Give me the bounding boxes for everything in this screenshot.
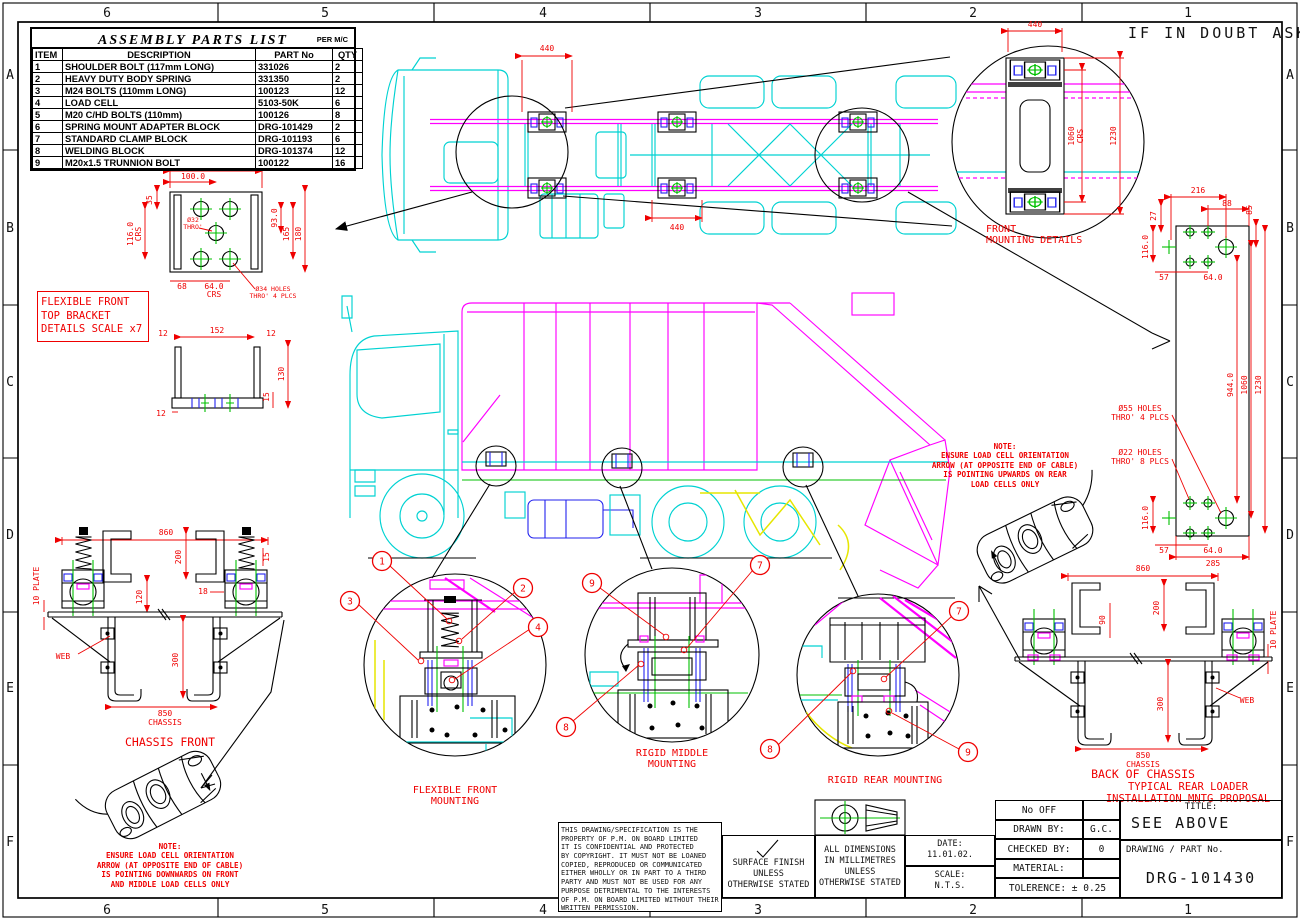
- callout-55-holes: THRO' 4 PLCS: [1111, 413, 1169, 422]
- no-off-value: [1083, 800, 1120, 820]
- assembly-parts-list: ASSEMBLY PARTS LIST PER M/C ITEM DESCRIP…: [30, 27, 356, 171]
- parts-list-per-mc: PER M/C: [317, 35, 348, 44]
- dim-216: 216: [1191, 186, 1206, 195]
- dim-1060: 1060: [1067, 126, 1076, 145]
- date-box: DATE:11.01.02.: [905, 835, 995, 866]
- zone-row-label: D: [1286, 528, 1294, 543]
- balloon-4: 4: [529, 618, 548, 637]
- callout-34-holes: THRO' 4 PLCS: [250, 292, 297, 300]
- dim-860-front: 860: [159, 528, 174, 537]
- surface-finish-box: SURFACE FINISHUNLESSOTHERWISE STATED: [722, 835, 815, 898]
- svg-text:3: 3: [347, 596, 353, 607]
- if-in-doubt-warning: IF IN DOUBT ASK: [1128, 24, 1300, 42]
- balloon-7-middle: 7: [751, 556, 770, 575]
- zone-row-label: F: [1286, 835, 1294, 850]
- svg-text:7: 7: [757, 560, 763, 571]
- zone-row-label: D: [6, 528, 14, 543]
- dim-12a: 12: [158, 329, 168, 338]
- parts-row: 8WELDING BLOCKDRG-10137412: [33, 145, 363, 157]
- title-cell: TITLE: SEE ABOVE: [1120, 800, 1282, 840]
- svg-text:8: 8: [767, 744, 773, 755]
- dim-120: 120: [135, 590, 144, 605]
- callout-22-holes: Ø22 HOLES: [1118, 447, 1162, 457]
- zone-row-label: F: [6, 835, 14, 850]
- dim-crs-brk: CRS: [134, 227, 143, 242]
- dim-300-back: 300: [1156, 697, 1165, 712]
- tolerance-cell: TOLERENCE: ± 0.25: [995, 878, 1120, 898]
- dim-200-back: 200: [1152, 601, 1161, 616]
- dim-130: 130: [277, 367, 286, 382]
- zone-col-label: 3: [754, 6, 762, 21]
- parts-row: 1SHOULDER BOLT (117mm LONG)3310262: [33, 61, 363, 73]
- drawing-number-cell: DRAWING / PART No. DRG-101430: [1120, 840, 1282, 898]
- balloon-2: 2: [514, 579, 533, 598]
- rigid-rear-mounting-detail: [778, 594, 959, 756]
- flexible-front-bracket-callout: FLEXIBLE FRONTTOP BRACKETDETAILS SCALE x…: [37, 291, 149, 342]
- svg-text:4: 4: [535, 622, 541, 633]
- dim-crs2: CRS: [207, 290, 222, 299]
- dim-68: 68: [177, 282, 187, 291]
- dim-860-back: 860: [1136, 564, 1151, 573]
- drawn-by-label: DRAWN BY:: [995, 820, 1083, 839]
- zone-col-label: 2: [969, 903, 977, 918]
- dim-440-middle: 440: [670, 223, 685, 232]
- zone-row-label: C: [6, 375, 14, 390]
- scale-box: SCALE:N.T.S.: [905, 866, 995, 898]
- dim-165: 165: [282, 227, 291, 242]
- dim-88: 88: [1222, 199, 1232, 208]
- dim-chassis-front: CHASSIS: [148, 718, 182, 727]
- parts-row: 6SPRING MOUNT ADAPTER BLOCKDRG-1014292: [33, 121, 363, 133]
- checked-by-label: CHECKED BY:: [995, 839, 1083, 859]
- svg-text:9: 9: [589, 578, 595, 589]
- flexible-front-top-bracket-detail: 200 100.0 35 116.0 CRS 93.0 165 180 Ø32 …: [126, 160, 305, 418]
- parts-list-title: ASSEMBLY PARTS LIST: [98, 33, 288, 48]
- front-mounting-detail: 440 1060 CRS 1230: [952, 20, 1144, 238]
- title-value: SEE ABOVE: [1131, 814, 1281, 832]
- dim-93: 93.0: [270, 208, 279, 227]
- dim-15-brk: 15: [262, 392, 271, 402]
- rigid-middle-mounting-label: RIGID MIDDLEMOUNTING: [602, 748, 742, 770]
- parts-header-row: ITEM DESCRIPTION PART No QTY: [33, 49, 363, 61]
- dim-27: 27: [1149, 211, 1158, 221]
- svg-text:9: 9: [965, 747, 971, 758]
- zone-col-label: 5: [321, 903, 329, 918]
- dimensions-note-box: ALL DIMENSIONSIN MILLIMETRESUNLESSOTHERW…: [815, 835, 905, 898]
- callout-32-thro: THRO': [183, 223, 203, 231]
- dim-12b: 12: [266, 329, 276, 338]
- dim-85: 85: [1245, 205, 1254, 215]
- dim-crs: CRS: [1076, 129, 1085, 144]
- svg-text:2: 2: [520, 583, 526, 594]
- web-label: WEB: [56, 652, 71, 661]
- svg-text:1: 1: [379, 556, 385, 567]
- zone-row-label: A: [6, 68, 14, 83]
- balloon-callouts: 1 2 3 4 9 7 8 7 8 9: [341, 552, 978, 762]
- zone-col-label: 1: [1184, 6, 1192, 21]
- parts-row: 4LOAD CELL5103-50K6: [33, 97, 363, 109]
- rigid-rear-mounting-label: RIGID REAR MOUNTING: [790, 775, 980, 786]
- title-label: TITLE:: [1121, 802, 1281, 812]
- dim-152: 152: [210, 326, 225, 335]
- no-off-label: No OFF: [995, 800, 1083, 820]
- truck-side-view: [342, 293, 955, 598]
- back-of-chassis-section: 860 200 90 10 PLATE 300 850 CHASSIS WEB: [979, 564, 1278, 769]
- material-value: [1083, 859, 1120, 878]
- balloon-9-rear: 9: [959, 743, 978, 762]
- projection-symbol: [815, 800, 905, 835]
- callout-55-holes: Ø55 HOLES: [1118, 403, 1162, 413]
- balloon-1: 1: [373, 552, 392, 571]
- dim-12c: 12: [156, 409, 166, 418]
- dim-1060-plate: 1060: [1240, 375, 1249, 394]
- dim-850-back: 850: [1136, 751, 1151, 760]
- front-mounting-details-label: FRONTMOUNTING DETAILS: [986, 224, 1082, 246]
- front-load-cell-note: NOTE:ENSURE LOAD CELL ORIENTATIONARROW (…: [65, 842, 275, 889]
- engineering-drawing-sheet: 6 5 4 3 2 1 6 5 4 3 2 1 A B C D E F A B …: [0, 0, 1300, 920]
- zone-col-label: 2: [969, 6, 977, 21]
- checked-by-value: 0: [1083, 839, 1120, 859]
- parts-table: ITEM DESCRIPTION PART No QTY 1SHOULDER B…: [32, 48, 363, 169]
- dim-1230: 1230: [1109, 126, 1118, 145]
- parts-row: 9M20x1.5 TRUNNION BOLT10012216: [33, 157, 363, 169]
- flexible-front-mounting-label: FLEXIBLE FRONTMOUNTING: [385, 785, 525, 807]
- parts-list-header: ASSEMBLY PARTS LIST PER M/C: [32, 29, 354, 48]
- parts-row: 5M20 C/HD BOLTS (110mm)1001268: [33, 109, 363, 121]
- zone-col-label: 5: [321, 6, 329, 21]
- rear-load-cell-note: NOTE:ENSURE LOAD CELL ORIENTATIONARROW (…: [900, 442, 1110, 489]
- zone-col-label: 6: [103, 6, 111, 21]
- load-cell-front-iso: [75, 737, 226, 855]
- dim-10-plate-back: 10 PLATE: [1269, 611, 1278, 650]
- dim-180: 180: [294, 227, 303, 242]
- drawing-number-label: DRAWING / PART No.: [1126, 845, 1281, 855]
- rear-bracket-plate-detail: 216 88 27 85 116.0 57 64.0 944.0 1060 12…: [1111, 186, 1265, 568]
- dim-35: 35: [145, 195, 154, 205]
- zone-row-label: A: [1286, 68, 1294, 83]
- dim-15-front: 15: [262, 552, 271, 562]
- zone-col-label: 4: [539, 6, 547, 21]
- dim-64-bot: 64.0: [1203, 546, 1222, 555]
- material-label: MATERIAL:: [995, 859, 1083, 878]
- balloon-8-rear: 8: [761, 740, 780, 759]
- copyright-disclaimer: THIS DRAWING/SPECIFICATION IS THE PROPER…: [558, 822, 722, 912]
- zone-col-label: 4: [539, 903, 547, 918]
- svg-text:8: 8: [563, 722, 569, 733]
- svg-text:7: 7: [956, 606, 962, 617]
- dim-440-front: 440: [540, 44, 555, 53]
- dim-440-detail: 440: [1028, 20, 1043, 29]
- zone-col-label: 6: [103, 903, 111, 918]
- zone-col-label: 1: [1184, 903, 1192, 918]
- parts-row: 7STANDARD CLAMP BLOCKDRG-1011936: [33, 133, 363, 145]
- dim-116-bot: 116.0: [1141, 506, 1150, 530]
- parts-row: 3M24 BOLTS (110mm LONG)10012312: [33, 85, 363, 97]
- web-label-back: WEB: [1240, 696, 1255, 705]
- parts-row: 2HEAVY DUTY BODY SPRING3313502: [33, 73, 363, 85]
- dim-18: 18: [198, 587, 208, 596]
- balloon-3: 3: [341, 592, 360, 611]
- rigid-middle-mounting-detail: [573, 568, 759, 742]
- dim-10-plate-front: 10 PLATE: [32, 567, 41, 606]
- zone-row-label: C: [1286, 375, 1294, 390]
- dim-944: 944.0: [1226, 373, 1235, 397]
- zone-row-label: E: [1286, 681, 1294, 696]
- dim-300-front: 300: [171, 653, 180, 668]
- dim-64-top: 64.0: [1203, 273, 1222, 282]
- zone-row-label: B: [6, 221, 14, 236]
- dim-1230-plate: 1230: [1254, 375, 1263, 394]
- callout-22-holes: THRO' 8 PLCS: [1111, 457, 1169, 466]
- dim-90: 90: [1098, 615, 1107, 625]
- dim-57-bot: 57: [1159, 546, 1169, 555]
- dim-200-front: 200: [174, 550, 183, 565]
- zone-row-label: B: [1286, 221, 1294, 236]
- zone-row-label: E: [6, 681, 14, 696]
- balloon-8-middle: 8: [557, 718, 576, 737]
- back-of-chassis-label: BACK OF CHASSIS: [1058, 767, 1228, 781]
- dim-57-top: 57: [1159, 273, 1169, 282]
- balloon-7-rear: 7: [950, 602, 969, 621]
- chassis-front-label: CHASSIS FRONT: [95, 735, 245, 749]
- balloon-9-middle: 9: [583, 574, 602, 593]
- dim-100: 100.0: [181, 172, 205, 181]
- dim-285: 285: [1206, 559, 1221, 568]
- drawing-number-value: DRG-101430: [1121, 869, 1281, 887]
- zone-col-label: 3: [754, 903, 762, 918]
- dim-116-top: 116.0: [1141, 235, 1150, 259]
- dim-850-front: 850: [158, 709, 173, 718]
- drawn-by-value: G.C.: [1083, 820, 1120, 839]
